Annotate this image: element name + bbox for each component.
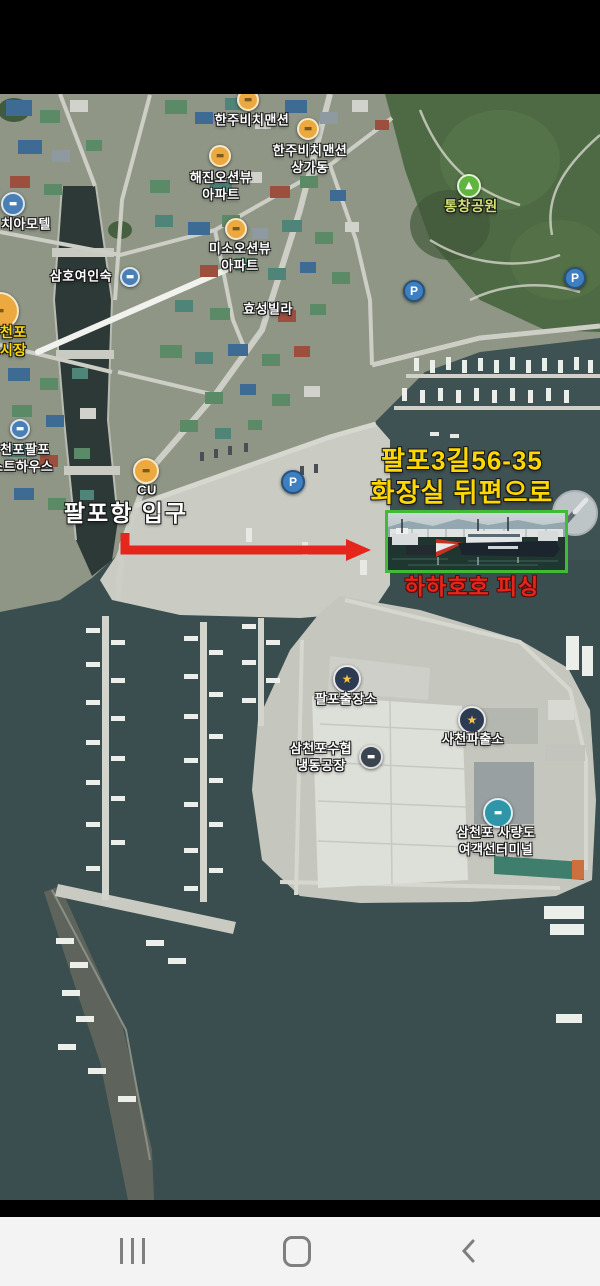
route-arrow <box>112 524 382 568</box>
lodging-poi-icon: ▬ <box>297 118 319 140</box>
apartment-poi-icon: ▬ <box>225 218 247 240</box>
map-label-tongchang-park: 통창공원 <box>444 197 498 215</box>
factory-poi-icon: ▬ <box>359 745 383 769</box>
map-label-cu: CU <box>137 483 157 500</box>
map-image[interactable]: ▬ ▬ ▬ ▲ P P P ▬ ▬ ▬ ▬ ▬ ▬ ★ ▬ ★ ▬ 한주비치맨션… <box>0 0 600 1286</box>
branch-office-poi-icon: ★ <box>333 665 361 693</box>
motel-poi-icon: ▬ <box>1 192 25 216</box>
inn-poi-icon: ▬ <box>120 267 140 287</box>
map-label-samho-inn: 삼호여인숙 <box>50 269 112 286</box>
phone-screen: ▬ ▬ ▬ ▲ P P P ▬ ▬ ▬ ▬ ▬ ▬ ★ ▬ ★ ▬ 한주비치맨션… <box>0 0 600 1286</box>
police-poi-icon: ★ <box>458 706 486 734</box>
parking-icon: P <box>564 267 586 289</box>
parking-icon: P <box>281 470 305 494</box>
map-label-guesthouse: 천포팔포스트하우스 <box>0 442 53 476</box>
boat-photo-inset <box>385 510 568 573</box>
map-label-sacheon-police: 사천파출소 <box>442 732 504 749</box>
map-label-address: 팔포3길56-35화장실 뒤편으로 <box>371 445 554 508</box>
map-label-ferry-terminal: 삼천포 사량도여객선터미널 <box>457 825 536 859</box>
map-label-market: 천포시장 <box>0 323 27 359</box>
guesthouse-poi-icon: ▬ <box>10 419 30 439</box>
boat-photo <box>388 513 565 570</box>
map-label-chia-motel: 치아모텔 <box>1 217 51 234</box>
letterbox-bottom <box>0 1200 600 1217</box>
android-nav-bar <box>0 1217 600 1286</box>
recents-button[interactable] <box>112 1233 152 1269</box>
map-label-hanju-annex: 한주비치맨션상가동 <box>273 143 348 177</box>
map-label-palpo-branch: 팔포출장소 <box>315 692 377 709</box>
back-button[interactable] <box>448 1233 488 1269</box>
park-poi-icon: ▲ <box>457 174 481 198</box>
map-label-miso-oceanview: 미소오션뷰아파트 <box>209 241 271 275</box>
parking-icon: P <box>403 280 425 302</box>
ferry-terminal-poi-icon: ▬ <box>483 798 513 828</box>
cu-store-icon: ▬ <box>133 458 159 484</box>
home-button[interactable] <box>277 1233 317 1269</box>
map-label-fishing-spot: 하하호호 피싱 <box>405 574 540 603</box>
letterbox-top <box>0 0 600 94</box>
map-label-hanju-mansion: 한주비치맨션 <box>215 113 290 130</box>
map-label-haejin-oceanview: 해진오션뷰아파트 <box>190 170 252 204</box>
satellite-map <box>0 0 600 1286</box>
map-label-hyoseong-villa: 효성빌라 <box>243 302 293 319</box>
map-label-suhyup-coldstore: 삼천포수협냉동공장 <box>290 741 352 775</box>
apartment-poi-icon: ▬ <box>209 145 231 167</box>
